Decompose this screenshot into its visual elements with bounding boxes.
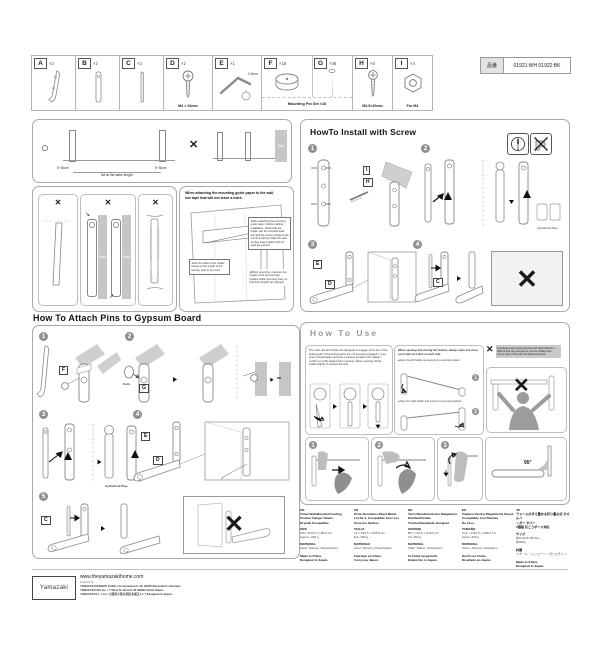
part-g: G×48 bbox=[312, 56, 351, 97]
bracket-hole bbox=[89, 222, 95, 228]
bracket-hole-2 bbox=[113, 222, 119, 228]
spec-column-fr: FR Porte-Serviettes Pliant Mural Lot De … bbox=[354, 508, 406, 568]
ok-pole bbox=[63, 160, 175, 161]
ok-mark: ○ bbox=[41, 140, 49, 155]
towel-step-1-diagram bbox=[308, 450, 366, 496]
install-step-1-number: 1 bbox=[308, 144, 317, 153]
use-open-step-2: 2 bbox=[472, 408, 479, 415]
ng-examples-box: ✕ ✕ Wall ↘ Wall ↗ ✕ bbox=[32, 186, 177, 312]
part-i-caption: For M4 bbox=[393, 104, 432, 108]
es-name-3: De Yeso bbox=[462, 521, 514, 525]
de-material: Stahl, Silikon, Polyethylen bbox=[408, 546, 460, 550]
no-power-driver-icon bbox=[530, 133, 552, 155]
product-code-box: 品番 01921:WH 01922:BK bbox=[480, 57, 571, 74]
pin-cap-icon bbox=[262, 70, 312, 94]
towel-step-2-diagram bbox=[374, 450, 432, 496]
angle-value: 95° bbox=[524, 460, 532, 466]
yamazaki-logo: Yamazaki bbox=[32, 576, 76, 600]
thin-rod-icon bbox=[120, 69, 163, 105]
guide-note-heading-2: use tape that will not leave a mark. bbox=[185, 196, 288, 201]
part-i: I×4 For M4 bbox=[392, 55, 433, 111]
jp-name-3: 2個組 石こうボード対応 bbox=[516, 525, 572, 529]
part-d: D×2 M4 × 16mm bbox=[163, 55, 213, 111]
spacing-diagram-box: ○ 5~30cm 5~30cm Set at the same length. … bbox=[32, 119, 292, 183]
fr-material: Acier, Silicone, Polyéthylène bbox=[354, 546, 406, 550]
de-name-3: Trockenbauwände Geeignet bbox=[408, 521, 460, 525]
fr-name-3: Cloisons Sèches bbox=[354, 521, 406, 525]
ng-pole bbox=[213, 158, 277, 159]
pins-cylindrical-caption: Cylindrical Pipe bbox=[105, 484, 128, 488]
spec-column-de: DE Turm Wandmontierter Klappbarer Handtu… bbox=[408, 508, 460, 568]
towel-step-2-panel: 2 bbox=[371, 437, 435, 501]
install-step-2-number: 2 bbox=[421, 144, 430, 153]
use-open-right-diagram bbox=[399, 406, 469, 432]
product-code-value: 01921:WH 01922:BK bbox=[504, 58, 570, 73]
parts-list: A×2 B×2 C×2 D×2 M4 × 16mm E×1 bbox=[32, 55, 433, 111]
ng-panel-2-x: ✕ bbox=[81, 199, 135, 207]
towel-step-2-number: 2 bbox=[375, 441, 383, 449]
wall-strip-right: Wall bbox=[122, 215, 131, 299]
footer-info: www.theyamazakihome.com Imported by YAMA… bbox=[80, 574, 181, 596]
footer-divider bbox=[32, 569, 568, 570]
towel-step-3-number: 3 bbox=[441, 441, 449, 449]
label-g: G bbox=[139, 384, 149, 393]
install-step-2-diagram bbox=[417, 156, 563, 236]
part-g-qty: ×48 bbox=[329, 61, 336, 66]
part-c-qty: ×2 bbox=[137, 61, 142, 66]
use-open-left-diagram bbox=[399, 372, 469, 398]
install-ng-x: ✕ bbox=[516, 266, 538, 292]
pin-set-caption-row: Mounting Pin Set ×16 bbox=[262, 97, 352, 110]
ng-panel-1: ✕ bbox=[38, 194, 78, 306]
towel-step-1-number: 1 bbox=[309, 441, 317, 449]
attach-pins-title: How To Attach Pins to Gypsum Board bbox=[33, 313, 201, 323]
part-f: F×16 bbox=[262, 56, 313, 97]
es-size-2: Aprox. 650 g bbox=[462, 535, 514, 539]
towel-step-1-panel: 1 bbox=[305, 437, 369, 501]
part-a: A×2 bbox=[31, 55, 76, 111]
part-a-qty: ×2 bbox=[49, 61, 54, 66]
use-open-step-1: 1 bbox=[472, 374, 479, 381]
part-e-qty: ×1 bbox=[230, 61, 235, 66]
attach-pins-box: 1 F 2 bbox=[32, 325, 300, 559]
ok-bracket-left bbox=[69, 130, 76, 162]
fr-name-2: Lot De 2, Compatible Avec Les bbox=[354, 516, 406, 520]
pins-ng-x: ✕ bbox=[224, 513, 244, 537]
use-open-head: When opening and closing the holders, al… bbox=[395, 346, 483, 359]
use-intro-panel: The main unit and holder are designed to… bbox=[305, 345, 393, 435]
cylindrical-pipe-caption: Cylindrical Pipe bbox=[537, 226, 558, 230]
instruction-sheet: A×2 B×2 C×2 D×2 M4 × 16mm E×1 bbox=[0, 0, 600, 650]
part-f-qty: ×16 bbox=[279, 61, 286, 66]
ok-bracket-right bbox=[159, 130, 166, 162]
part-e: E×1 2.5mm bbox=[212, 55, 262, 111]
hex-key-size: 2.5mm bbox=[248, 72, 258, 76]
pins-step-1-number: 1 bbox=[39, 332, 48, 341]
install-step-3-number: 3 bbox=[308, 240, 317, 249]
tilted-bracket-diagram bbox=[39, 207, 75, 295]
part-fg-group: F×16 G×48 Mounting Pin Set ×16 bbox=[261, 55, 353, 111]
en-origin-2: Designed in Japan. bbox=[300, 558, 352, 562]
guide-note-box: When attaching the mounting guide paper … bbox=[179, 186, 294, 312]
part-e-label: E bbox=[215, 58, 228, 69]
warped-bracket-diagram bbox=[139, 207, 170, 295]
es-origin-2: Diseñado en Japón. bbox=[462, 558, 514, 562]
footer-url: www.theyamazakihome.com bbox=[80, 574, 181, 580]
part-i-label: I bbox=[395, 58, 408, 69]
pins-label-c: C bbox=[41, 516, 51, 525]
how-to-use-title: How To Use bbox=[310, 328, 378, 338]
de-origin-2: Entworfen in Japan. bbox=[408, 558, 460, 562]
part-b-label: B bbox=[78, 58, 91, 69]
angle-diagram bbox=[490, 444, 562, 494]
use-warning-area: ✕ Simultaneously locking the left and ri… bbox=[486, 345, 565, 433]
install-step-3-diagram bbox=[306, 250, 418, 306]
use-warning-text: Simultaneously locking the left and righ… bbox=[496, 345, 561, 358]
pins-step-3-number: 3 bbox=[39, 410, 48, 419]
en-material: Steel, Silicone, Polyethylene bbox=[300, 546, 352, 550]
guide-note-bullet-right-2: ●When mounting, measure the height of th… bbox=[248, 269, 289, 286]
label-d: D bbox=[325, 280, 335, 289]
yamazaki-logo-text: Yamazaki bbox=[40, 585, 68, 591]
screw-icon bbox=[353, 69, 392, 99]
pins-step-1-diagram bbox=[35, 342, 121, 404]
label-c: C bbox=[433, 278, 443, 287]
pins-step-2-number: 2 bbox=[125, 332, 134, 341]
ng-panel-3-x: ✕ bbox=[139, 199, 172, 207]
use-warning-x: ✕ bbox=[486, 345, 494, 354]
part-b: B×2 bbox=[75, 55, 120, 111]
spec-column-es: ES Toallero Percha Plegable De Pared, Co… bbox=[462, 508, 514, 568]
part-h-caption: M3.5×20mm bbox=[353, 104, 392, 108]
ng-panel-1-x: ✕ bbox=[39, 199, 77, 207]
part-h: H×8 M3.5×20mm bbox=[352, 55, 393, 111]
use-open-panel: When opening and closing the holders, al… bbox=[394, 345, 484, 435]
ng-wall: Wall bbox=[275, 130, 287, 162]
guide-note-bullet-left: ●Set the width of the holder based on th… bbox=[189, 259, 230, 275]
countersunk-screw-icon bbox=[164, 69, 212, 99]
pin-icon bbox=[312, 68, 351, 98]
part-a-label: A bbox=[34, 58, 47, 69]
press-arrow-2: ↗ bbox=[109, 293, 114, 300]
towel-step-3-panel: 3 bbox=[437, 437, 483, 501]
dim-left: 5~30cm bbox=[57, 166, 68, 170]
part-h-qty: ×8 bbox=[370, 61, 375, 66]
install-ng-panel: ✕ bbox=[491, 251, 563, 306]
press-arrow-1: ↘ bbox=[85, 211, 90, 218]
same-length-note: Set at the same length. bbox=[73, 173, 161, 177]
ng-bracket-right bbox=[245, 132, 251, 161]
jp-size-2: 約650g bbox=[516, 540, 572, 544]
fr-size-2: Env. 650 g bbox=[354, 535, 406, 539]
pins-label-e: E bbox=[141, 432, 150, 441]
label-h: H bbox=[363, 178, 373, 187]
wall-label-b: Wall bbox=[279, 354, 285, 358]
es-material: Acero, Silicona, Polietileno bbox=[462, 546, 514, 550]
jp-material: スチール・シリコーン・ポリエチレン bbox=[516, 552, 572, 556]
pins-step-5-number: 5 bbox=[39, 492, 48, 501]
product-code-label: 品番 bbox=[481, 58, 504, 73]
part-c-label: C bbox=[122, 58, 135, 69]
label-e: E bbox=[313, 260, 322, 269]
towel-step-3-diagram bbox=[440, 450, 480, 496]
label-f: F bbox=[59, 366, 68, 375]
use-warning-panel: ✕ bbox=[486, 367, 567, 433]
en-size-2: Approx. 650 g bbox=[300, 535, 352, 539]
ng-panel-3: ✕ bbox=[138, 194, 173, 306]
use-unlock-diagram bbox=[308, 382, 390, 432]
part-d-caption: M4 × 16mm bbox=[164, 104, 212, 108]
pins-ng-panel: ✕ bbox=[183, 496, 285, 554]
part-d-label: D bbox=[166, 58, 179, 69]
part-c: C×2 bbox=[119, 55, 164, 111]
de-size-2: Ca. 650 g bbox=[408, 535, 460, 539]
pins-label-d: D bbox=[153, 456, 163, 465]
install-screw-title: HowTo Install with Screw bbox=[310, 127, 416, 137]
nut-icon bbox=[393, 72, 432, 94]
jp-origin-2: Designed in Japan. bbox=[516, 564, 572, 568]
angle-panel: 95° bbox=[485, 437, 567, 501]
use-intro-text: The main unit and holder are designed to… bbox=[306, 346, 392, 370]
how-to-use-box: How To Use The main unit and holder are … bbox=[300, 322, 570, 505]
coin-label: Coin bbox=[123, 382, 130, 386]
use-open-left: ●Open the left holder and ensure it is s… bbox=[395, 359, 483, 362]
flat-bar-icon bbox=[76, 69, 119, 105]
en-name-3: Drywall Compatible bbox=[300, 521, 352, 525]
pins-step-2-diagram bbox=[121, 342, 293, 404]
footer-line-3: YAMAZAKI Co., Ltd. / 大阪府大阪市西区北堀江2-1-7 De… bbox=[80, 592, 181, 596]
use-open-right: ●Open the right holder and ensure it is … bbox=[398, 400, 478, 403]
part-f-label: F bbox=[264, 58, 277, 69]
pins-step-4-number: 4 bbox=[133, 410, 142, 419]
install-screw-box: HowTo Install with Screw 1 I H 2 bbox=[300, 119, 570, 312]
part-h-label: H bbox=[355, 58, 368, 69]
jp-name-1: ウォール片手で畳める折り畳み式 タオルハ bbox=[516, 512, 572, 520]
spec-column-en: EN Towel Wall-Mounted Folding Clothes Ha… bbox=[300, 508, 352, 568]
pins-step-5-diagram bbox=[35, 502, 175, 554]
part-b-qty: ×2 bbox=[93, 61, 98, 66]
manual-screwdriver-icon bbox=[507, 133, 529, 155]
label-i: I bbox=[363, 166, 370, 175]
ng-mark: ✕ bbox=[189, 140, 198, 151]
bracket-arm-icon bbox=[32, 69, 75, 105]
pins-step-4-diagram bbox=[129, 420, 293, 486]
spec-column-jp: JP ウォール片手で畳める折り畳み式 タオルハ ンガー タワー 2個組 石こうボ… bbox=[516, 508, 572, 568]
install-step-4-diagram bbox=[411, 250, 487, 306]
guide-note-bullet-right: ●After attaching the mounting guide pape… bbox=[248, 217, 291, 250]
fr-origin-2: Conçu au Japon. bbox=[354, 558, 406, 562]
use-warning-big-x: ✕ bbox=[513, 376, 530, 396]
install-step-4-number: 4 bbox=[413, 240, 422, 249]
bracket-front bbox=[87, 219, 97, 297]
pin-set-caption: Mounting Pin Set ×16 bbox=[288, 102, 327, 106]
ng-panel-2: ✕ Wall ↘ Wall ↗ bbox=[80, 194, 136, 306]
guide-note-heading-1: When attaching the mounting guide paper … bbox=[185, 191, 288, 196]
wall-label-a: Wall bbox=[255, 354, 261, 358]
part-d-qty: ×2 bbox=[181, 61, 186, 66]
language-specs: EN Towel Wall-Mounted Folding Clothes Ha… bbox=[300, 508, 572, 568]
ng-bracket-left bbox=[217, 132, 223, 161]
wall-strip-left: Wall bbox=[98, 215, 107, 299]
part-i-qty: ×4 bbox=[410, 61, 415, 66]
bracket-front-2 bbox=[111, 219, 121, 297]
